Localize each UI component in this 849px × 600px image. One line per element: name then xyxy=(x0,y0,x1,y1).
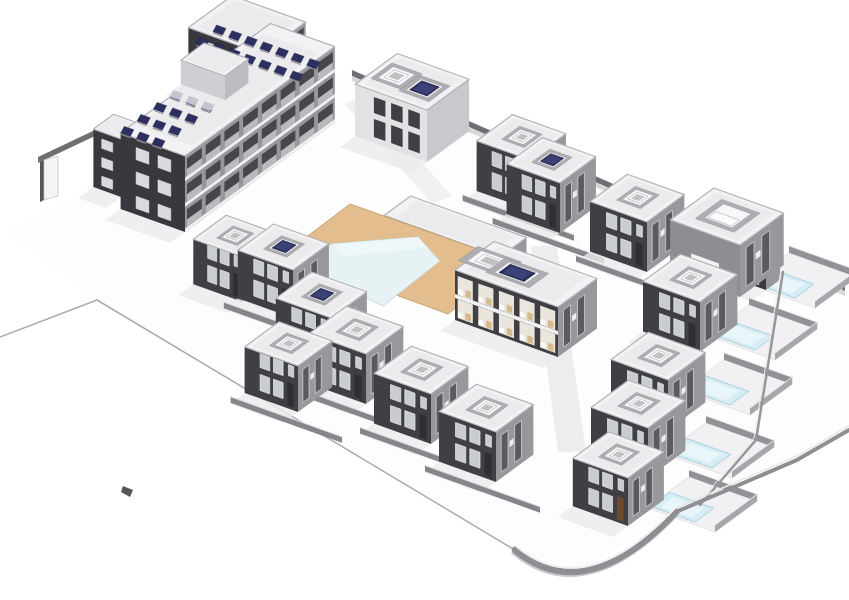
window-strip xyxy=(565,182,572,224)
site-marker xyxy=(121,486,133,497)
door xyxy=(549,203,555,228)
entry-pillar-shade xyxy=(40,160,44,202)
window-strip xyxy=(705,300,712,342)
window xyxy=(660,314,670,334)
window xyxy=(621,239,631,259)
window xyxy=(208,265,217,284)
door xyxy=(617,496,624,521)
window-strip xyxy=(687,368,694,410)
window-strip xyxy=(501,430,508,472)
architectural-render xyxy=(0,0,849,600)
door xyxy=(355,374,362,400)
window-strip xyxy=(633,477,640,517)
entry-wall xyxy=(38,130,95,163)
window-strip xyxy=(303,365,309,403)
window xyxy=(550,186,555,199)
entry-pillar xyxy=(44,156,58,200)
window xyxy=(690,304,696,317)
boundary-west xyxy=(0,300,97,337)
site-marker xyxy=(121,486,133,497)
window xyxy=(536,179,546,196)
door xyxy=(485,452,492,478)
window xyxy=(522,174,532,192)
window-strip xyxy=(515,420,522,462)
window-strip xyxy=(646,467,653,507)
door xyxy=(420,414,427,440)
window xyxy=(421,396,427,409)
window xyxy=(607,234,617,254)
window xyxy=(274,379,284,398)
entry-pillar-shade xyxy=(40,160,44,202)
window-strip xyxy=(315,356,321,394)
window-strip xyxy=(667,416,674,458)
entry-wall xyxy=(38,130,95,163)
window xyxy=(254,280,264,300)
window-strip xyxy=(652,220,659,262)
door xyxy=(689,322,696,348)
window xyxy=(492,172,502,192)
door xyxy=(636,242,643,268)
window xyxy=(274,358,284,375)
window xyxy=(589,488,599,508)
window xyxy=(522,195,532,215)
window xyxy=(492,151,502,169)
window-strip xyxy=(762,230,770,275)
window xyxy=(603,493,613,513)
window xyxy=(283,270,289,283)
window xyxy=(536,200,546,219)
window xyxy=(618,478,624,491)
window xyxy=(486,434,492,447)
window xyxy=(391,406,401,426)
window xyxy=(356,356,362,369)
window xyxy=(260,374,270,394)
window-strip xyxy=(578,172,585,214)
door xyxy=(287,382,293,407)
entry-pillar xyxy=(44,156,58,200)
window xyxy=(340,371,350,391)
window xyxy=(260,353,270,371)
window-strip xyxy=(564,305,571,347)
window xyxy=(674,319,684,339)
window xyxy=(638,430,644,443)
window xyxy=(470,449,480,469)
3d-site-model-canvas xyxy=(0,0,849,600)
window xyxy=(288,365,293,378)
window xyxy=(456,444,466,464)
window xyxy=(220,270,229,289)
window-strip xyxy=(746,242,754,287)
window xyxy=(405,411,415,431)
boundary-west xyxy=(0,300,97,337)
window-strip xyxy=(578,295,585,337)
window-strip xyxy=(719,290,726,332)
window xyxy=(637,224,643,237)
